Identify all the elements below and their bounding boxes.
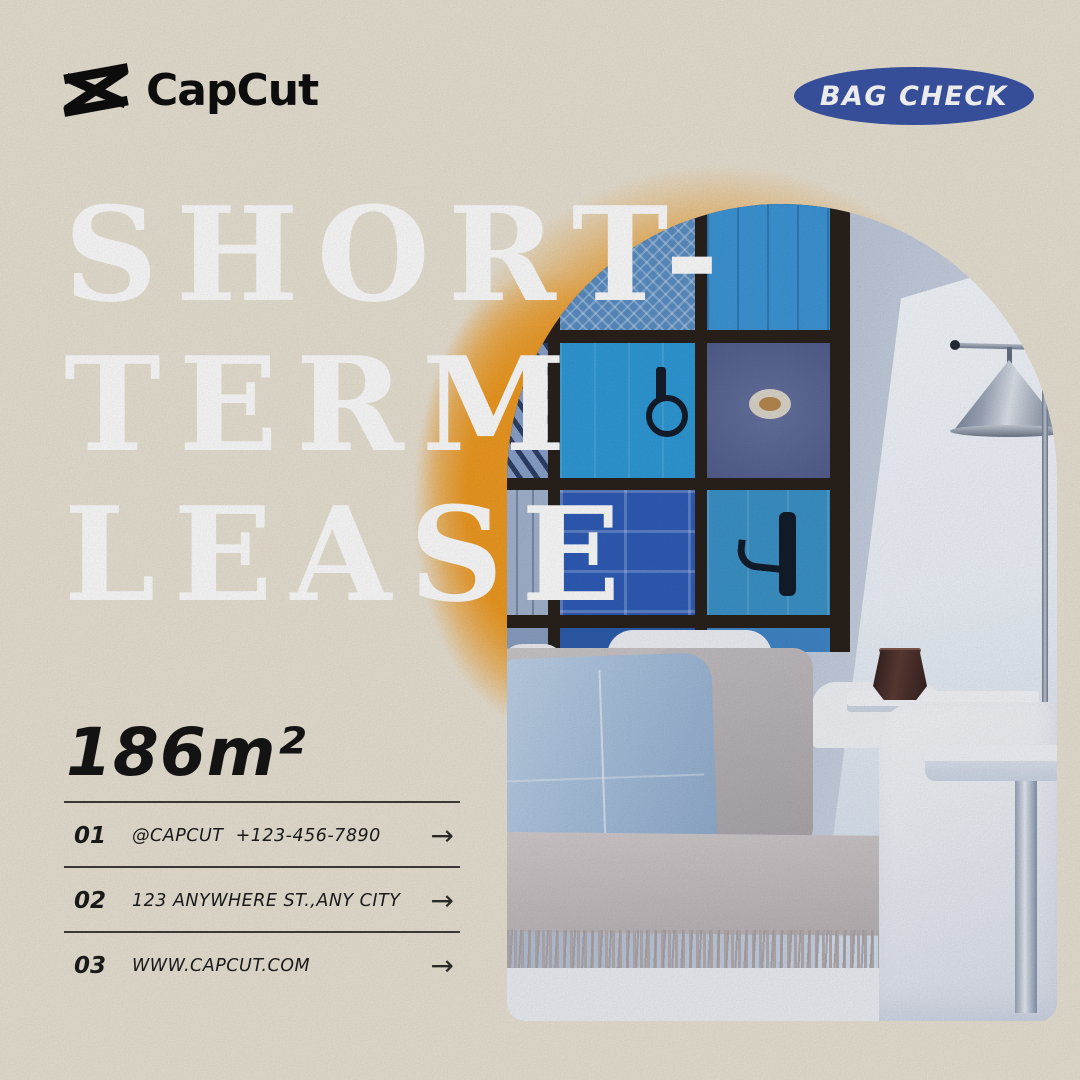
contact-list: 01 @CAPCUT +123-456-7890 → 02 123 ANYWHE… bbox=[64, 801, 460, 996]
area-value: 186m² bbox=[66, 714, 306, 791]
c-table-top bbox=[925, 745, 1057, 761]
contact-text: @CAPCUT +123-456-7890 bbox=[132, 826, 431, 846]
poster-canvas: { "brand": { "name": "CapCut" }, "badge"… bbox=[0, 0, 1080, 1080]
contact-text: WWW.CAPCUT.COM bbox=[132, 956, 431, 976]
contact-row: 03 WWW.CAPCUT.COM → bbox=[64, 931, 460, 996]
logo-wordmark: CapCut bbox=[146, 65, 318, 116]
contact-number: 02 bbox=[74, 888, 132, 914]
bag-check-badge: BAG CHECK bbox=[794, 67, 1034, 125]
sofa-seat-front bbox=[507, 968, 913, 1021]
dark-vase bbox=[873, 650, 927, 700]
grey-throw-blanket bbox=[507, 832, 924, 936]
right-arrow-icon: → bbox=[431, 949, 454, 982]
brass-plate-icon bbox=[749, 389, 791, 419]
contact-number: 03 bbox=[74, 953, 132, 979]
badge-label: BAG CHECK bbox=[820, 81, 1008, 112]
door-handle-curl bbox=[736, 539, 792, 573]
pillow-seam bbox=[507, 773, 704, 782]
c-table-edge bbox=[925, 761, 1057, 781]
contact-row: 01 @CAPCUT +123-456-7890 → bbox=[64, 801, 460, 866]
headline-line-2: TERM bbox=[64, 330, 737, 480]
headline-line-1: SHORT- bbox=[64, 180, 737, 330]
headline: SHORT- TERM LEASE bbox=[64, 180, 737, 630]
brass-plate-center bbox=[759, 397, 781, 411]
contact-row: 02 123 ANYWHERE ST.,ANY CITY → bbox=[64, 866, 460, 931]
right-arrow-icon: → bbox=[431, 819, 454, 852]
c-table-leg bbox=[1015, 781, 1037, 1013]
right-arrow-icon: → bbox=[431, 884, 454, 917]
headline-line-3: LEASE bbox=[64, 480, 737, 630]
contact-number: 01 bbox=[74, 823, 132, 849]
floor-lamp-shade-rim bbox=[950, 425, 1057, 437]
capcut-icon bbox=[60, 62, 132, 118]
capcut-logo: CapCut bbox=[60, 62, 318, 118]
floor-lamp-finial bbox=[950, 340, 960, 350]
contact-text: 123 ANYWHERE ST.,ANY CITY bbox=[132, 891, 431, 911]
floor-lamp-stem bbox=[1007, 347, 1012, 363]
